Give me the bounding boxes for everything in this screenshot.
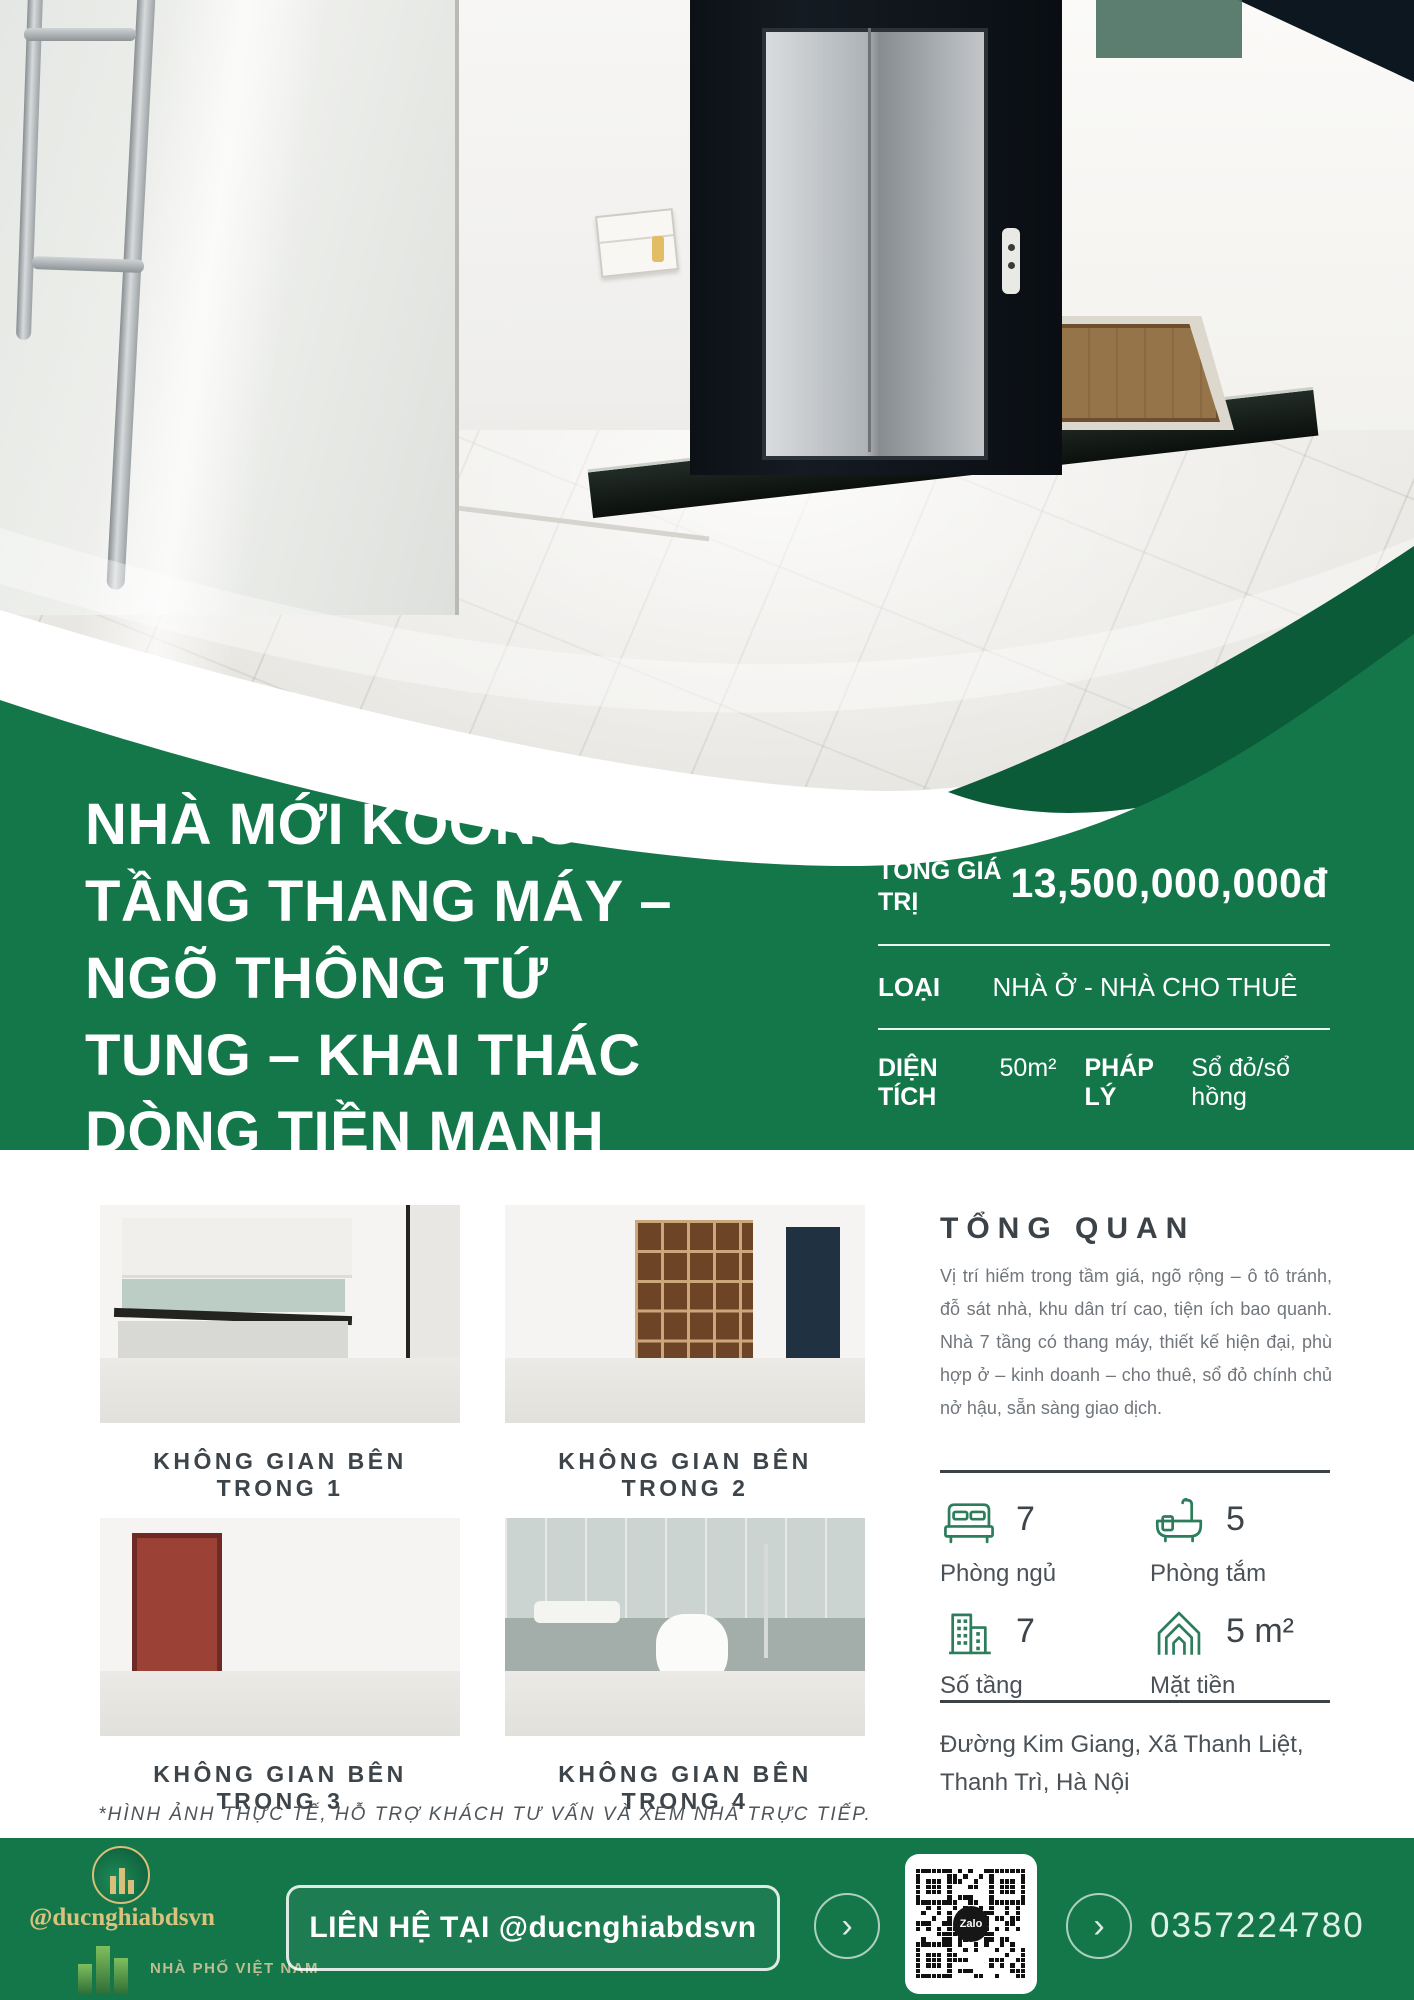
hall-floor bbox=[505, 1358, 865, 1423]
info-divider-2 bbox=[878, 1028, 1330, 1030]
overview-divider-top bbox=[940, 1470, 1330, 1473]
bathroom-sink bbox=[534, 1601, 620, 1623]
brand-logo-icon bbox=[72, 1938, 142, 1994]
kitchen-floor bbox=[100, 1358, 460, 1423]
stat-value: 7 bbox=[1016, 1612, 1035, 1651]
kitchen-upper-cabinets bbox=[122, 1218, 352, 1278]
hero-section: NHÀ MỚI KOONG 7 TẦNG THANG MÁY – NGÕ THÔ… bbox=[0, 0, 1414, 1150]
qr-code[interactable]: Zalo bbox=[905, 1854, 1037, 1994]
info-divider-1 bbox=[878, 944, 1330, 946]
room-floor bbox=[100, 1671, 460, 1736]
gallery-photo-1 bbox=[100, 1205, 460, 1423]
listing-title: NHÀ MỚI KOONG 7 TẦNG THANG MÁY – NGÕ THÔ… bbox=[85, 786, 775, 1150]
contact-button[interactable]: LIÊN HỆ TẠI @ducnghiabdsvn bbox=[286, 1885, 780, 1971]
stat-value: 5 bbox=[1226, 1500, 1245, 1539]
chevron-right-icon: › bbox=[814, 1893, 880, 1959]
bed-icon bbox=[940, 1492, 998, 1550]
agent-handle[interactable]: @ducnghiabdsvn bbox=[12, 1904, 232, 1932]
bathroom-floor bbox=[505, 1671, 865, 1736]
gallery-photo-4 bbox=[505, 1518, 865, 1736]
stat-label: Phòng ngủ bbox=[940, 1560, 1056, 1588]
area-legal-row: DIỆN TÍCH 50m² PHÁP LÝ Sổ đỏ/sổ hồng bbox=[878, 1054, 1330, 1112]
footer-bar: @ducnghiabdsvn NHÀ PHỐ VIỆT NAM LIÊN HỆ … bbox=[0, 1838, 1414, 2000]
building-icon bbox=[940, 1604, 998, 1662]
type-value: NHÀ Ở - NHÀ CHO THUÊ bbox=[960, 972, 1330, 1003]
area-label: DIỆN TÍCH bbox=[878, 1054, 986, 1112]
stat-label: Số tầng bbox=[940, 1672, 1023, 1700]
stat-value: 5 m² bbox=[1226, 1612, 1294, 1651]
overview-heading: TỔNG QUAN bbox=[940, 1212, 1195, 1246]
legal-value: Sổ đỏ/sổ hồng bbox=[1191, 1054, 1330, 1112]
phone-number[interactable]: 0357224780 bbox=[1150, 1906, 1390, 1946]
type-label: LOẠI bbox=[878, 972, 940, 1003]
kitchen-wall bbox=[406, 1205, 460, 1375]
area-value: 50m² bbox=[1000, 1054, 1057, 1083]
overview-text: Vị trí hiếm trong tầm giá, ngõ rộng – ô … bbox=[940, 1260, 1332, 1425]
gallery-photo-2 bbox=[505, 1205, 865, 1423]
stat-value: 7 bbox=[1016, 1500, 1035, 1539]
chevron-right-icon-2: › bbox=[1066, 1893, 1132, 1959]
flyer-page: NHÀ MỚI KOONG 7 TẦNG THANG MÁY – NGÕ THÔ… bbox=[0, 0, 1414, 2000]
photo-disclaimer: *HÌNH ẢNH THỰC TẾ, HỖ TRỢ KHÁCH TƯ VẤN V… bbox=[60, 1804, 910, 1826]
bathtub-icon bbox=[1150, 1492, 1208, 1550]
stat-label: Mặt tiền bbox=[1150, 1672, 1235, 1700]
stat-label: Phòng tắm bbox=[1150, 1560, 1266, 1588]
gallery-label-1: KHÔNG GIAN BÊN TRONG 1 bbox=[100, 1448, 460, 1502]
legal-label: PHÁP LÝ bbox=[1084, 1054, 1177, 1112]
house-frontage-icon bbox=[1150, 1604, 1208, 1662]
overview-divider-bottom bbox=[940, 1700, 1330, 1703]
gallery-label-2: KHÔNG GIAN BÊN TRONG 2 bbox=[505, 1448, 865, 1502]
zalo-icon: Zalo bbox=[953, 1906, 989, 1942]
bathroom-shower bbox=[764, 1544, 768, 1657]
property-address: Đường Kim Giang, Xã Thanh Liệt, Thanh Tr… bbox=[940, 1726, 1332, 1802]
gallery-photo-3 bbox=[100, 1518, 460, 1736]
kitchen-backsplash bbox=[122, 1279, 345, 1312]
total-price-value: 13,500,000,000đ bbox=[1010, 860, 1328, 907]
agent-logo-icon bbox=[92, 1846, 150, 1904]
